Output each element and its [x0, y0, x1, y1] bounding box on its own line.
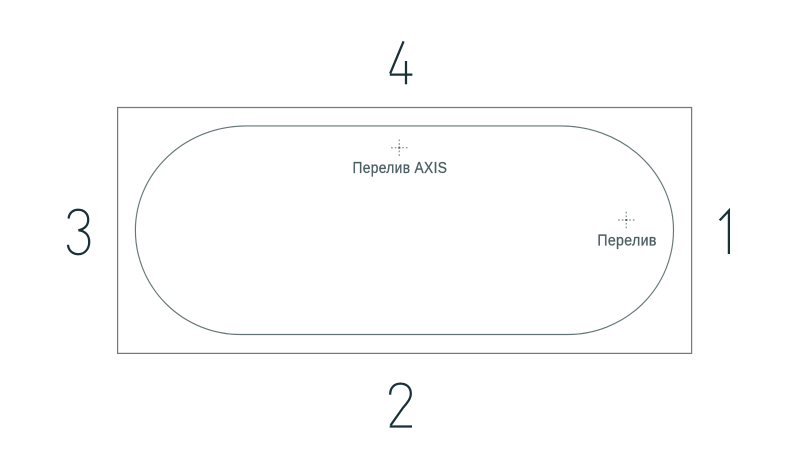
svg-text:Перелив AXIS: Перелив AXIS	[353, 160, 448, 177]
svg-text:Перелив: Перелив	[597, 232, 656, 250]
